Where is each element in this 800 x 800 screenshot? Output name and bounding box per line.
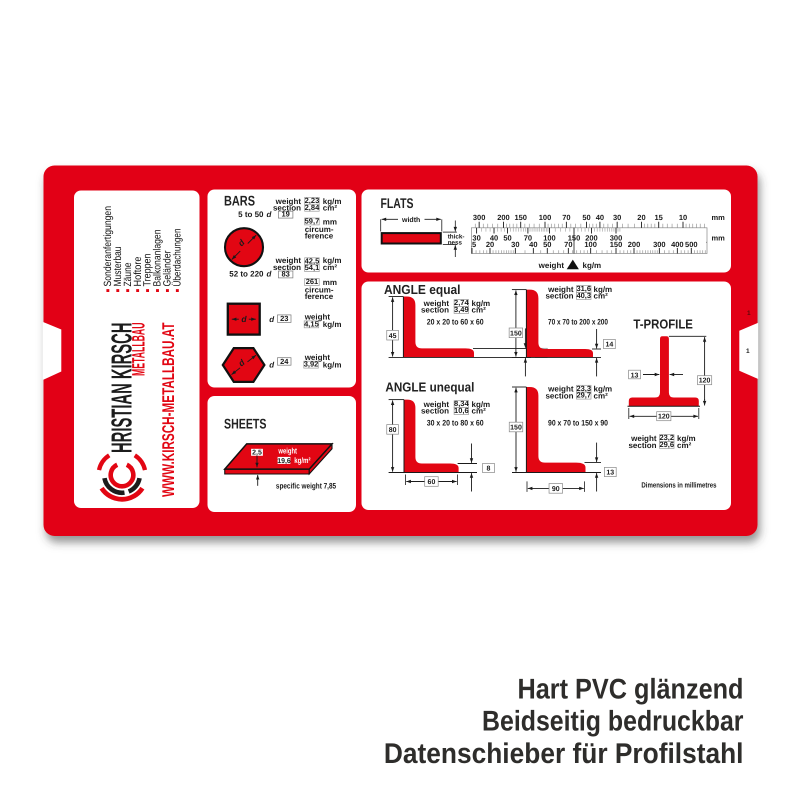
svg-text:cm²: cm² (677, 441, 692, 450)
svg-text:19: 19 (281, 210, 289, 219)
svg-text:40: 40 (529, 240, 537, 249)
svg-text:1: 1 (747, 310, 751, 317)
svg-text:60: 60 (428, 479, 436, 486)
svg-text:cm²: cm² (323, 204, 338, 213)
svg-text:100: 100 (584, 240, 597, 249)
svg-text:Hart PVC glänzend: Hart PVC glänzend (518, 674, 744, 706)
svg-text:METALLBAU: METALLBAU (129, 323, 149, 377)
svg-text:200: 200 (628, 240, 641, 249)
svg-text:13: 13 (606, 470, 614, 477)
svg-text:3,49: 3,49 (454, 305, 469, 314)
svg-text:200: 200 (497, 213, 510, 222)
svg-text:400: 400 (671, 240, 684, 249)
svg-text:23: 23 (280, 314, 288, 323)
svg-text:40,3: 40,3 (576, 291, 591, 300)
svg-text:54,1: 54,1 (305, 263, 320, 272)
svg-text:150: 150 (510, 330, 522, 337)
svg-text:14: 14 (606, 342, 614, 349)
svg-text:section: section (545, 292, 573, 301)
svg-text:30: 30 (511, 240, 519, 249)
svg-text:ness: ness (448, 239, 463, 246)
svg-text:20: 20 (637, 213, 645, 222)
svg-text:100: 100 (539, 213, 552, 222)
svg-text:8: 8 (487, 466, 491, 473)
svg-text:500: 500 (685, 240, 698, 249)
svg-text:20: 20 (486, 240, 494, 249)
svg-text:24: 24 (280, 357, 289, 366)
svg-text:Beidseitig bedruckbar: Beidseitig bedruckbar (482, 706, 744, 738)
svg-text:section: section (628, 441, 656, 450)
svg-text:d: d (241, 314, 247, 324)
svg-text:ANGLE unequal: ANGLE unequal (385, 380, 474, 395)
svg-text:BARS: BARS (224, 192, 255, 208)
svg-text:20 x 20 to 60 x 60: 20 x 20 to 60 x 60 (427, 318, 484, 327)
svg-text:83: 83 (281, 270, 289, 279)
svg-text:kg/m: kg/m (323, 361, 342, 370)
svg-text:kg/m²: kg/m² (294, 456, 311, 465)
svg-text:specific weight 7,85: specific weight 7,85 (276, 481, 337, 490)
svg-text:mm: mm (712, 233, 726, 242)
svg-text:mm: mm (712, 213, 726, 222)
svg-text:cm²: cm² (472, 407, 487, 416)
svg-text:section: section (421, 306, 449, 315)
svg-text:50: 50 (582, 213, 590, 222)
svg-text:29,6: 29,6 (659, 440, 674, 449)
svg-text:40: 40 (596, 213, 604, 222)
svg-text:70 x 70 to 200 x 200: 70 x 70 to 200 x 200 (548, 318, 608, 327)
svg-text:3,92: 3,92 (304, 360, 319, 369)
svg-text:Überdachungen: Überdachungen (172, 228, 184, 286)
svg-text:30: 30 (613, 213, 621, 222)
svg-text:150: 150 (514, 213, 527, 222)
svg-text:4,15: 4,15 (304, 319, 319, 328)
svg-text:ference: ference (305, 232, 334, 241)
svg-text:cm²: cm² (472, 306, 487, 315)
svg-text:section: section (545, 391, 573, 400)
svg-text:10: 10 (679, 213, 687, 222)
svg-text:weight: weight (278, 447, 298, 456)
svg-text:50: 50 (543, 240, 551, 249)
svg-text:15: 15 (655, 213, 663, 222)
svg-text:5 to 50: 5 to 50 (238, 210, 264, 219)
svg-text:29,7: 29,7 (576, 391, 591, 400)
svg-text:10,6: 10,6 (454, 406, 469, 415)
svg-text:weight: weight (538, 261, 565, 270)
svg-text:2,5: 2,5 (252, 450, 262, 457)
svg-text:70: 70 (564, 240, 572, 249)
svg-text:width: width (401, 216, 420, 224)
svg-text:ference: ference (305, 292, 334, 301)
svg-text:2,84: 2,84 (305, 203, 320, 212)
svg-text:T-PROFILE: T-PROFILE (633, 316, 693, 331)
svg-text:kg/m: kg/m (583, 261, 602, 270)
svg-text:120: 120 (658, 414, 670, 421)
svg-text:Datenschieber für Profilstahl: Datenschieber für Profilstahl (384, 738, 744, 770)
svg-text:30 x 20 to 80 x 60: 30 x 20 to 80 x 60 (427, 418, 484, 427)
svg-text:45: 45 (389, 333, 397, 340)
svg-text:ANGLE equal: ANGLE equal (384, 282, 461, 297)
svg-text:90 x 70 to 150 x 90: 90 x 70 to 150 x 90 (548, 418, 608, 427)
svg-text:cm²: cm² (323, 263, 338, 272)
svg-text:WWW.KIRSCH-METALLBAU.AT: WWW.KIRSCH-METALLBAU.AT (159, 322, 178, 497)
svg-text:cm²: cm² (594, 391, 609, 400)
svg-text:cm²: cm² (594, 292, 609, 301)
svg-text:70: 70 (562, 213, 570, 222)
svg-text:13: 13 (631, 372, 639, 379)
svg-text:19,6: 19,6 (277, 458, 291, 465)
svg-text:FLATS: FLATS (381, 195, 414, 211)
svg-text:52 to 220: 52 to 220 (229, 270, 264, 279)
svg-text:150: 150 (510, 425, 522, 432)
svg-text:150: 150 (610, 240, 623, 249)
svg-text:300: 300 (653, 240, 666, 249)
svg-text:section: section (421, 407, 449, 416)
svg-text:SHEETS: SHEETS (224, 416, 267, 432)
svg-text:kg/m: kg/m (323, 320, 342, 329)
svg-text:80: 80 (389, 427, 397, 434)
svg-text:120: 120 (699, 378, 711, 385)
svg-text:90: 90 (552, 486, 560, 493)
svg-text:1: 1 (746, 348, 750, 355)
svg-text:300: 300 (473, 213, 486, 222)
svg-text:Dimensions in millimetres: Dimensions in millimetres (641, 481, 716, 490)
